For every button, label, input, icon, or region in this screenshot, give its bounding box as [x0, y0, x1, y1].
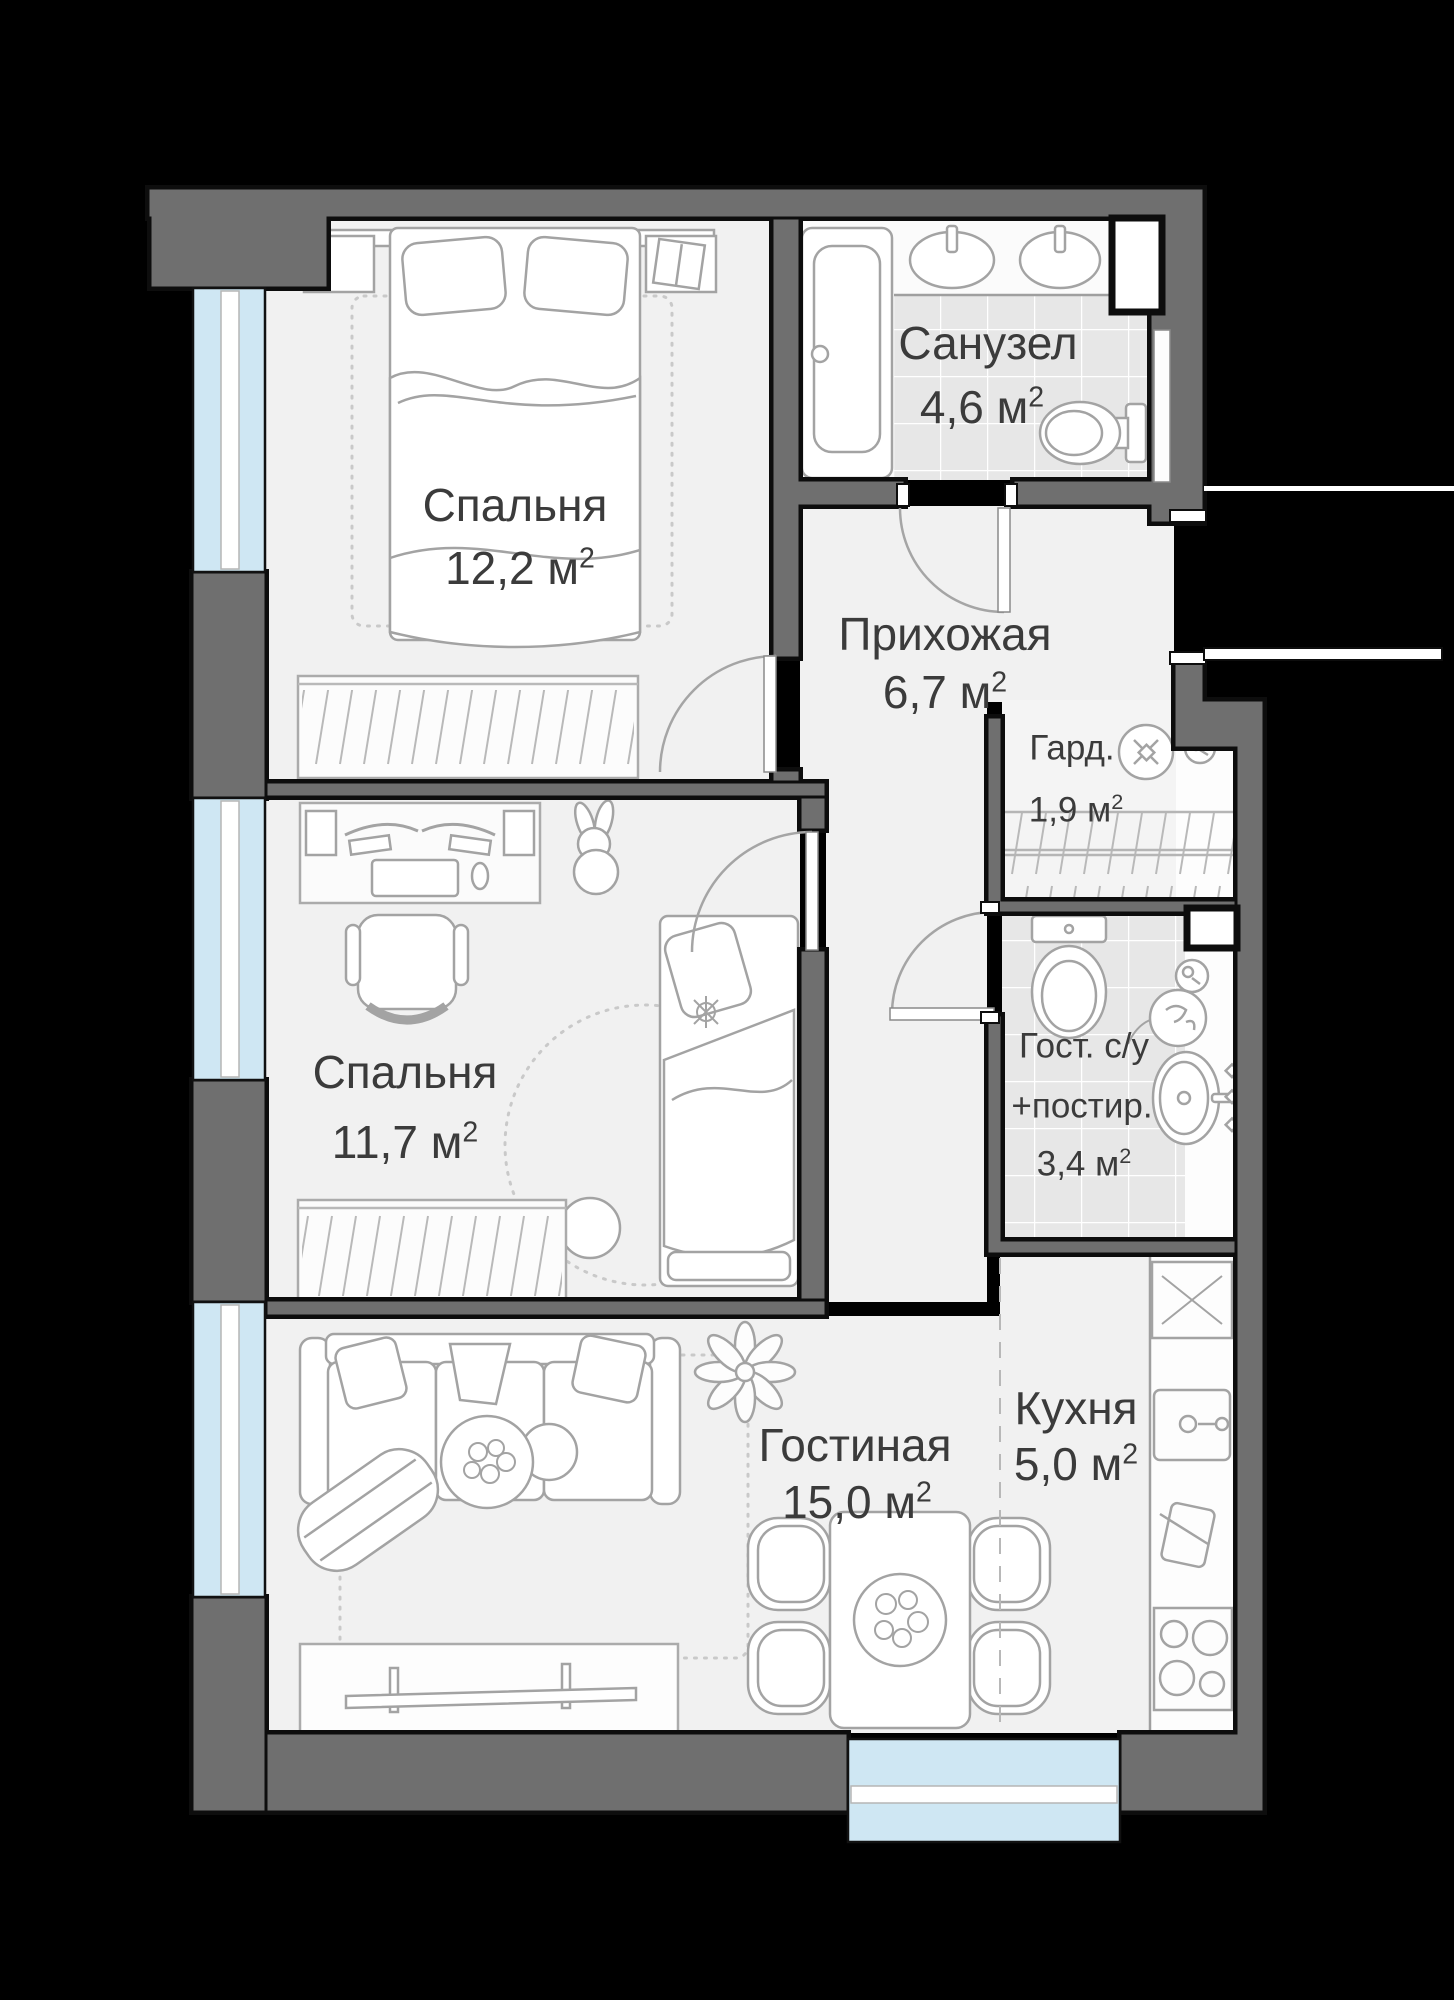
room-label-kitchen: Кухня [1014, 1385, 1137, 1431]
room-area-wardrobe: 1,9 м2 [1029, 793, 1124, 828]
dining-chair [748, 1518, 830, 1610]
room-area-guest-wc: 3,4 м2 [1037, 1147, 1132, 1182]
room-area-bedroom-1: 12,2 м2 [445, 545, 595, 591]
window-frame [851, 1786, 1117, 1803]
dining-table [830, 1512, 970, 1728]
duct-niche [1112, 218, 1162, 312]
room-label-guest-wc: Гост. с/у [1019, 1029, 1149, 1064]
door-jamb [1170, 652, 1206, 664]
toilet [1040, 402, 1146, 464]
bathtub [802, 228, 892, 478]
tv-console [300, 1644, 678, 1733]
office-chair [346, 915, 468, 1020]
book-icon [653, 239, 705, 289]
dining-chair [748, 1622, 830, 1714]
entrance-door [1170, 486, 1454, 664]
child-bed [660, 916, 798, 1286]
dining-chair [968, 1622, 1050, 1714]
floor-corridor [826, 797, 987, 1302]
corridor-line [1204, 486, 1454, 491]
room-area-living: 15,0 м2 [782, 1479, 932, 1525]
room-label-bathroom: Санузел [898, 320, 1077, 366]
wardrobe-hatch [298, 1200, 566, 1300]
faucet-icon [1055, 226, 1065, 252]
duct-niche [1187, 908, 1237, 948]
desk [300, 803, 540, 903]
wardrobe-hatch [298, 676, 638, 778]
toilet [1032, 916, 1106, 1038]
dining-chair [968, 1518, 1050, 1610]
shaft [1154, 330, 1170, 482]
room-label-bedroom-1: Спальня [423, 482, 608, 528]
pouf [560, 1198, 620, 1258]
room-label-guest-wc-2: +постир. [1011, 1089, 1152, 1124]
entrance-door-leaf [1204, 648, 1442, 660]
room-area-bathroom: 4,6 м2 [920, 384, 1044, 430]
room-label-living: Гостиная [758, 1422, 951, 1468]
window-frame [221, 291, 239, 569]
room-label-wardrobe: Гард. [1029, 731, 1114, 766]
door-jamb [1170, 510, 1206, 522]
washing-machine-icon [1119, 725, 1173, 779]
room-area-kitchen: 5,0 м2 [1014, 1441, 1138, 1487]
room-label-bedroom-2: Спальня [313, 1049, 498, 1095]
faucet-icon [947, 226, 957, 252]
window-frame [221, 801, 239, 1077]
window-frame [221, 1305, 239, 1594]
room-label-hallway: Прихожая [838, 611, 1051, 657]
plant-icon [695, 1322, 795, 1422]
room-area-bedroom-2: 11,7 м2 [332, 1119, 478, 1165]
room-area-hallway: 6,7 м2 [883, 669, 1007, 715]
floor-plan-svg [0, 0, 1454, 2000]
floor-plan: Спальня 12,2 м2 Санузел 4,6 м2 Прихожая … [0, 0, 1454, 2000]
hairdryer-icon [1176, 960, 1208, 992]
